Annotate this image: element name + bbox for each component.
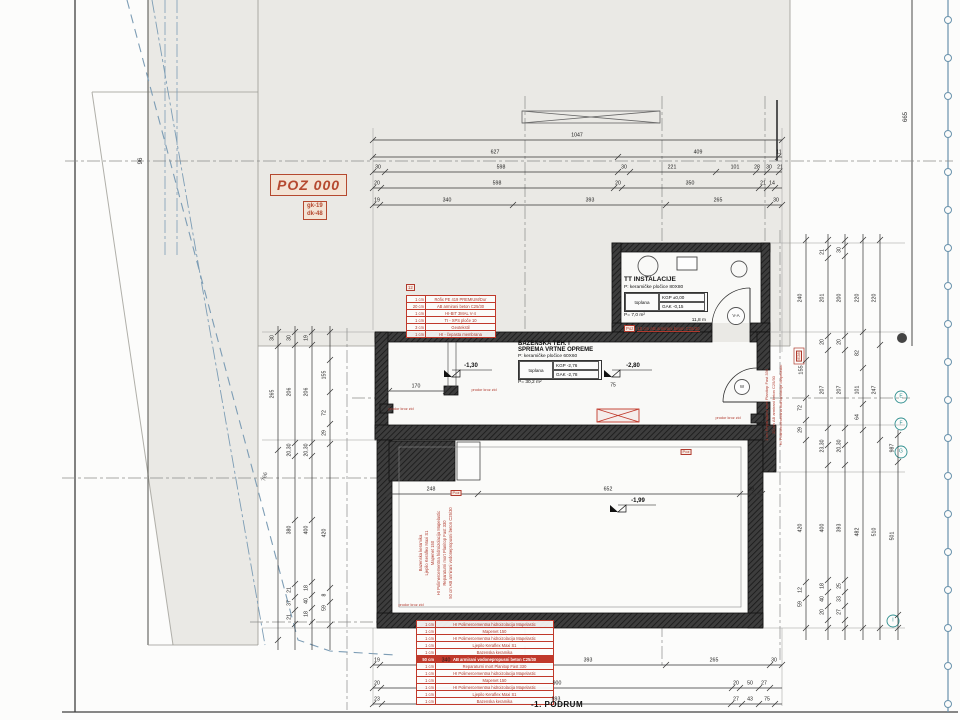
layer-thickness: 1 cm	[417, 698, 436, 704]
layer-material: AB armirani beton C25/30	[426, 303, 495, 309]
layer-material: Reparaturni mort Planitop Fast 330	[436, 663, 553, 669]
layer-thickness: 1 cm	[407, 310, 426, 316]
poz-sub-line2: dk-48	[307, 211, 323, 219]
poz-000-label: POZ 000	[270, 174, 347, 196]
layer-thickness: 1 cm	[417, 677, 436, 683]
door-tag-circle	[735, 380, 750, 395]
room-tt-block: TT INSTALACIJE P: keramičke pločice 80X8…	[624, 276, 744, 332]
wall-assembly-code: 12	[406, 284, 415, 291]
layer-thickness: 1 cm	[417, 663, 436, 669]
wall-opening-mark	[597, 409, 639, 422]
layer-thickness: 1 cm	[417, 684, 436, 690]
layer-thickness: 50 cm	[417, 656, 436, 662]
layer-thickness: 1 cm	[417, 670, 436, 676]
room-baz-finish: P: keramičke pločice 60X60	[518, 354, 638, 359]
room-tt-table: toplana KGP ±0,00 GAK -0,15	[624, 292, 708, 312]
room-baz-block: BAZENSKA TEH. I SPREMA VRTNE OPREME P: k…	[518, 341, 638, 385]
room-tt-finish: P: keramičke pločice 80X80	[624, 285, 744, 290]
room-tt-note: 10 cm AB armirani beton C25/30	[637, 326, 699, 332]
layer-thickness: 1 cm	[407, 317, 426, 323]
material-row: 3 cmGeotekstil	[407, 324, 495, 331]
layer-material: HI-BIT 3MAL V-4	[426, 310, 495, 316]
room-baz-kgp: KGP -2,76	[553, 361, 599, 370]
room-baz-gak: GAK -2,78	[553, 370, 599, 379]
material-row: 1 cmBazenska keramika	[417, 649, 553, 656]
layer-thickness: 1 cm	[417, 691, 436, 697]
material-row: 1 cmHI Polimercementna hidroizolacija Ma…	[417, 621, 553, 628]
wall-assembly-table: 1 cmRöfix PE 419 PREMIUM/Dur20 cmAB armi…	[406, 295, 496, 338]
floor-plan-page: POZ 000 gk-19 dk-48 TT INSTALACIJE P: ke…	[0, 0, 960, 720]
layer-material: AB armirani vodonepropusni beton C25/30	[436, 656, 553, 662]
layer-material: Geotekstil	[426, 324, 495, 330]
room-baz-area: P= 30,2 m²	[518, 380, 638, 385]
room-tt-gak: GAK -0,15	[659, 302, 705, 311]
room-baz-table: toplana KGP -2,76 GAK -2,78	[518, 360, 602, 380]
material-row: 50 cmAB armirani vodonepropusni beton C2…	[417, 656, 553, 663]
layer-material: HI Polimercementna hidroizolacija Mapela…	[436, 635, 553, 641]
layer-material: Mapenet 150	[436, 677, 553, 683]
poz-sub-line1: gk-19	[307, 203, 323, 211]
pool-niche	[457, 442, 480, 480]
plan-linework	[0, 0, 960, 720]
material-row: 1 cmReparaturni mort Planitop Fast 330	[417, 663, 553, 670]
material-row: 1 cmHI Polimercementna hidroizolacija Ma…	[417, 684, 553, 691]
room-tt-kgp: KGP ±0,00	[659, 293, 705, 302]
room-baz-title2: SPREMA VRTNE OPREME	[518, 347, 638, 353]
floor-assembly-table: 1 cmHI Polimercementna hidroizolacija Ma…	[416, 620, 554, 705]
layer-material: HI - čepasta membrana	[426, 331, 495, 337]
material-row: 1 cmHI-BIT 3MAL V-4	[407, 310, 495, 317]
layer-material: Ljepilo Keraflex Maxi S1	[436, 691, 553, 697]
material-row: 1 cmMapenet 150	[417, 677, 553, 684]
layer-thickness: 1 cm	[417, 635, 436, 641]
room-tt-perimeter: 11,8 m	[624, 318, 706, 323]
layer-material: HI Polimercementna hidroizolacija Mapela…	[436, 670, 553, 676]
wall-assembly-block: 12 1 cmRöfix PE 419 PREMIUM/Dur20 cmAB a…	[406, 276, 496, 338]
drawing-title: -1. PODRUM	[531, 700, 583, 709]
room-tt-cell: toplana	[625, 293, 659, 311]
material-row: 1 cmMapenet 150	[417, 628, 553, 635]
room-tt-title: TT INSTALACIJE	[624, 276, 744, 283]
layer-thickness: 1 cm	[407, 296, 426, 302]
material-row: 20 cmAB armirani beton C25/30	[407, 303, 495, 310]
material-row: 1 cmHI Polimercementna hidroizolacija Ma…	[417, 635, 553, 642]
layer-material: HI Polimercementna hidroizolacija Mapela…	[436, 684, 553, 690]
layer-material: HI Polimercementna hidroizolacija Mapela…	[436, 621, 553, 627]
layer-material: Bazenska keramika	[436, 649, 553, 655]
layer-material: Röfix PE 419 PREMIUM/Dur	[426, 296, 495, 302]
material-row: 1 cmLjepilo Keraflex Maxi S1	[417, 642, 553, 649]
material-row: 1 cmTI - XPS ploče 10	[407, 317, 495, 324]
grid-bubbles	[887, 333, 907, 627]
material-row: 1 cmLjepilo Keraflex Maxi S1	[417, 691, 553, 698]
layer-thickness: 1 cm	[417, 621, 436, 627]
layer-thickness: 1 cm	[417, 649, 436, 655]
material-row: 1 cmHI - čepasta membrana	[407, 331, 495, 337]
room-tt-poz-box: Poz	[624, 325, 635, 332]
layer-material: TI - XPS ploče 10	[426, 317, 495, 323]
poz-code-boxes	[794, 348, 804, 364]
layer-material: Mapenet 150	[436, 628, 553, 634]
layer-thickness: 3 cm	[407, 324, 426, 330]
room-baz-cell: toplana	[519, 361, 553, 379]
material-row: 1 cmHI Polimercementna hidroizolacija Ma…	[417, 670, 553, 677]
layer-thickness: 1 cm	[407, 331, 426, 337]
layer-thickness: 1 cm	[417, 628, 436, 634]
material-row: 1 cmRöfix PE 419 PREMIUM/Dur	[407, 296, 495, 303]
layer-material: Ljepilo Keraflex Maxi S1	[436, 642, 553, 648]
layer-thickness: 1 cm	[417, 642, 436, 648]
poz-sub-label: gk-19 dk-48	[303, 201, 327, 220]
layer-thickness: 20 cm	[407, 303, 426, 309]
fence-line	[945, 0, 952, 712]
